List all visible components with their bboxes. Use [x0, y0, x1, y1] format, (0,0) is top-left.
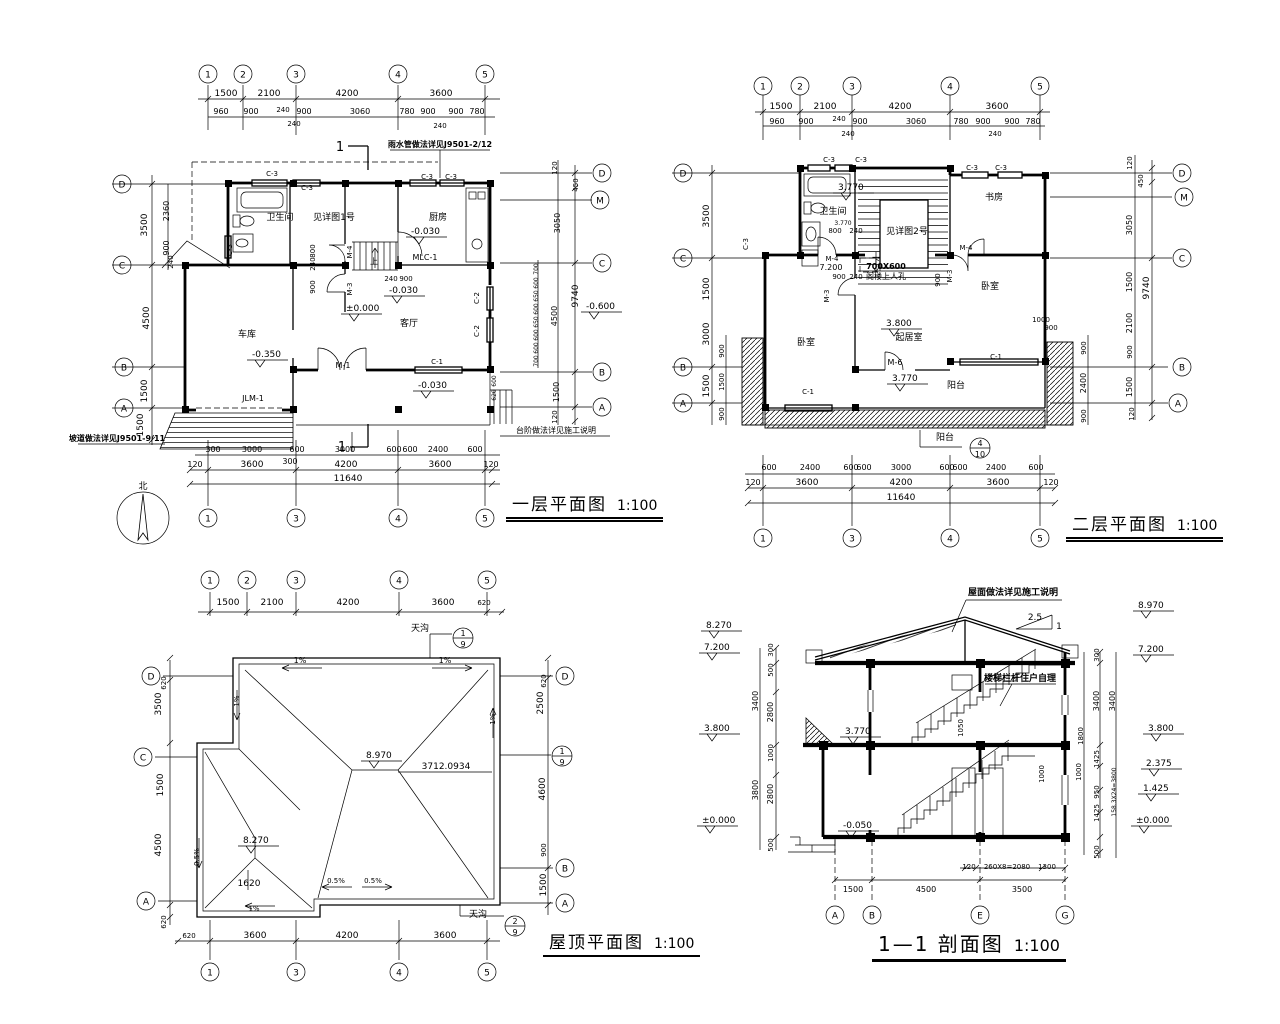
dim-label: 4200 — [336, 89, 359, 99]
level-label: 8.970 — [1138, 601, 1164, 611]
dim-label: 3500 — [702, 204, 712, 227]
grid-bubble-label: G — [1062, 912, 1069, 922]
dim-label: 9740 — [1142, 276, 1152, 299]
dim-label: 600 — [761, 463, 776, 472]
dim-label: 1500 — [843, 885, 863, 894]
dim-label: 900 — [296, 107, 311, 116]
dim-label: 3600 — [432, 598, 455, 608]
dim-label: 2100 — [261, 598, 284, 608]
title-text: 屋顶平面图 — [549, 933, 644, 953]
dim-label: 240 — [988, 130, 1001, 138]
dim-label: 4500 — [550, 306, 559, 326]
level-label: 8.270 — [243, 836, 269, 846]
dim-label: 3400 — [1108, 691, 1117, 711]
dim-label: 起居室 — [895, 331, 922, 343]
dim-label: 见详图1号 — [313, 211, 355, 223]
dim-label: 楼梯栏杆住户自理 — [984, 672, 1056, 684]
grid-bubble-label: M — [596, 197, 604, 207]
dim-label: 车库 — [238, 328, 256, 340]
level-symbol — [238, 846, 279, 853]
dim-label: 2.5 — [1028, 613, 1042, 623]
level-label: 1.425 — [1143, 784, 1169, 794]
title-roof-plan: 屋顶平面图1:100 — [543, 928, 700, 957]
dim-label: 2800 — [766, 702, 775, 722]
dim-label: 600 — [402, 445, 417, 454]
dim-label: 1500 — [702, 374, 712, 397]
dim-label: 900 — [162, 240, 171, 255]
grid-bubble-label: D — [680, 170, 687, 180]
level-label: -0.030 — [418, 381, 447, 391]
dim-label: 780 — [953, 117, 968, 126]
grid-bubble-label: 1 — [205, 515, 211, 525]
dim-label: 1425 — [1093, 750, 1101, 768]
dim-label: 2100 — [1125, 313, 1134, 333]
dim-label: C-1 — [802, 388, 814, 396]
dim-label: 1500 — [552, 382, 561, 402]
level-label: 3.800 — [1148, 724, 1174, 734]
dim-label: C-3 — [966, 164, 978, 172]
dim-label: 900 — [540, 843, 548, 856]
grid-bubble-label: 1 — [207, 577, 213, 587]
dim-label: 屋面做法详见施工说明 — [968, 586, 1058, 598]
grid-bubble-label: A — [599, 404, 606, 414]
dim-label: C-3 — [301, 184, 313, 192]
dim-label: 3.770 — [834, 220, 851, 227]
grid-bubble-label: A — [143, 898, 150, 908]
level-label: 3.800 — [704, 724, 730, 734]
grid-bubble-label: C — [1179, 255, 1185, 265]
dim-label: 600 — [467, 445, 482, 454]
dim-label: C-3 — [226, 244, 234, 256]
section-1-1 — [760, 600, 1116, 903]
dim-label: 3600 — [430, 89, 453, 99]
dim-label: 120 — [1128, 407, 1136, 420]
dim-label: 700X600 — [866, 262, 906, 271]
dim-label: 1500 — [156, 773, 166, 796]
dim-label: 3600 — [434, 931, 457, 941]
grid-bubble-label: B — [121, 364, 127, 374]
dim-label: 900 — [798, 117, 813, 126]
dim-label: 1500 — [1125, 272, 1134, 292]
dim-label: JLM-1 — [241, 394, 264, 403]
dim-label: 1300 — [1038, 863, 1056, 871]
level-symbol — [1138, 794, 1179, 801]
dim-label: 120 — [745, 478, 760, 487]
dim-label: 3050 — [553, 213, 562, 233]
dim-label: M-4 — [825, 255, 839, 263]
grid-bubble-label: 3 — [293, 515, 299, 525]
dim-label: 阳台 — [936, 431, 954, 443]
dim-label: M-3 — [946, 269, 954, 282]
dim-label: 240 — [433, 122, 446, 130]
level-symbol — [341, 314, 382, 321]
dim-label: 1 — [336, 140, 344, 155]
dim-label: C-2 — [473, 325, 481, 337]
grid-bubble-label: 1 — [205, 71, 211, 81]
dim-label: 卧室 — [797, 336, 815, 348]
dim-label: 1500 — [770, 102, 793, 112]
dim-label: 600 — [533, 329, 540, 341]
grid-bubble-label: 5 — [484, 969, 490, 979]
dim-label: C-3 — [995, 164, 1007, 172]
grid-bubble-label: E — [977, 912, 983, 922]
dim-label: C-3 — [742, 238, 750, 250]
grid-bubble-label: D — [1179, 170, 1186, 180]
dim-label: 900 — [1004, 117, 1019, 126]
dim-label: 1050 — [957, 719, 965, 737]
dim-label: MLC-1 — [413, 253, 438, 262]
dim-label: 1800 — [1077, 727, 1085, 745]
dim-label: 卧室 — [981, 280, 999, 292]
title-text: 一层平面图 — [512, 495, 607, 515]
dim-label: 650 — [533, 290, 540, 302]
dim-label: 900 — [718, 344, 726, 357]
level-label: -0.600 — [586, 302, 615, 312]
level-label: ±0.000 — [1136, 816, 1170, 826]
detail-sheet: 10 — [975, 450, 985, 459]
grid-bubble-label: D — [119, 181, 126, 191]
dim-label: C-3 — [823, 156, 835, 164]
dim-label: 北 — [138, 481, 147, 492]
level-label: -0.030 — [389, 286, 418, 296]
dim-label: 上 — [370, 257, 378, 266]
dim-label: 900 — [718, 407, 726, 420]
dim-label: 客厅 — [400, 317, 418, 329]
dim-label: 900 — [420, 107, 435, 116]
dim-label: 4200 — [336, 931, 359, 941]
dim-label: 3712.0934 — [422, 762, 471, 772]
grid-bubble-label: 3 — [293, 577, 299, 587]
level-symbol — [701, 631, 742, 638]
level-label: 7.200 — [1138, 645, 1164, 655]
dim-label: 800 — [309, 244, 317, 257]
grid-bubble-label: 3 — [849, 535, 855, 545]
dim-label: 960 — [769, 117, 784, 126]
detail-number: 1 — [559, 747, 564, 756]
grid-bubble-label: 5 — [482, 515, 488, 525]
dim-label: 书房 — [985, 191, 1003, 203]
dim-label: 3400 — [1092, 691, 1101, 711]
dim-label: 900 — [934, 273, 942, 286]
dim-label: C-3 — [421, 173, 433, 181]
dim-label: 1000 — [1038, 765, 1046, 783]
title-scale: 1:100 — [1177, 518, 1217, 534]
dim-label: 260X8=2080 — [984, 863, 1030, 871]
grid-bubble-label: 2 — [244, 577, 250, 587]
level-symbol — [699, 734, 740, 741]
dim-label: 500 — [767, 838, 775, 851]
dim-label: 900 — [399, 275, 412, 283]
dim-label: 阳台 — [947, 379, 965, 391]
grid-bubble-label: B — [562, 865, 568, 875]
detail-number: 2 — [512, 917, 517, 926]
dim-label: 4500 — [154, 833, 164, 856]
dim-label: 620 — [182, 932, 195, 940]
dim-label: 450 — [1137, 174, 1145, 187]
dim-label: 600 — [289, 445, 304, 454]
level-label: -0.350 — [252, 350, 281, 360]
grid-bubble-label: C — [599, 260, 605, 270]
dim-label: C-3 — [266, 170, 278, 178]
grid-bubble-label: B — [680, 364, 686, 374]
dim-label: 240 — [384, 275, 397, 283]
dim-label: 1% — [439, 656, 452, 665]
dim-label: 950 — [1093, 785, 1101, 798]
dim-label: 2500 — [536, 691, 546, 714]
title-second-floor-plan: 二层平面图1:100 — [1066, 510, 1223, 542]
dim-label: 3400 — [751, 691, 760, 711]
dim-label: 1500 — [217, 598, 240, 608]
grid-bubble-label: 3 — [293, 969, 299, 979]
level-symbol — [413, 391, 454, 398]
grid-bubble-label: 4 — [395, 71, 401, 81]
dim-label: 4200 — [890, 478, 913, 488]
dim-label: 650 — [533, 316, 540, 328]
grid-bubble-label: 1 — [760, 535, 766, 545]
level-symbol — [887, 384, 928, 391]
dim-label: 240 — [841, 130, 854, 138]
dim-label: 3060 — [350, 107, 370, 116]
grid-bubble-label: C — [140, 754, 146, 764]
grid-bubble-label: D — [562, 673, 569, 683]
dim-label: 600 — [856, 463, 871, 472]
grid-bubble-label: 5 — [1037, 83, 1043, 93]
grid-bubble-label: 4 — [396, 969, 402, 979]
title-scale: 1:100 — [654, 936, 694, 952]
grid-bubble-label: A — [1175, 400, 1182, 410]
dim-label: 120 — [1043, 478, 1058, 487]
dim-label: 158.3X24=3800 — [1111, 767, 1118, 816]
dim-label: 2360 — [162, 201, 171, 221]
dim-label: 4500 — [916, 885, 936, 894]
dim-label: 1% — [489, 713, 497, 724]
level-label: 3.770 — [838, 183, 864, 193]
dim-label: 4500 — [142, 306, 152, 329]
level-symbol — [247, 360, 288, 367]
dim-label: 3600 — [987, 478, 1010, 488]
dim-label: 1620 — [238, 879, 261, 889]
dim-label: 2800 — [766, 784, 775, 804]
dim-label: 2100 — [814, 102, 837, 112]
dim-label: 卫生间 — [819, 205, 846, 217]
dim-label: 雨水管做法详见J9501-2/12 — [388, 139, 492, 149]
grid-bubble-label: C — [680, 255, 686, 265]
dim-label: 3800 — [751, 780, 760, 800]
dim-label: C-3 — [445, 173, 457, 181]
dim-label: 11640 — [334, 474, 363, 484]
dim-label: 600 — [1028, 463, 1043, 472]
title-first-floor-plan: 一层平面图1:100 — [506, 490, 663, 522]
architectural-drawing-sheet: 1500210042003600960900240900306078090090… — [0, 0, 1280, 1024]
dim-label: M-3 — [346, 282, 354, 295]
dim-label: 4200 — [337, 598, 360, 608]
dim-label: 780 — [399, 107, 414, 116]
grid-bubble-label: C — [119, 262, 125, 272]
level-symbol — [1131, 826, 1172, 833]
grid-bubble-label: 2 — [797, 83, 803, 93]
dim-label: 3000 — [702, 322, 712, 345]
dim-label: 240 — [309, 257, 317, 270]
north-arrow — [117, 492, 169, 544]
dim-label: 3500 — [140, 213, 150, 236]
detail-number: 1 — [460, 629, 465, 638]
level-symbol — [1143, 734, 1184, 741]
grid-bubble-label: 5 — [484, 577, 490, 587]
level-symbol — [581, 312, 622, 319]
dim-label: 3000 — [335, 445, 355, 454]
dim-label: 1500 — [1125, 377, 1134, 397]
grid-bubble-label: B — [599, 369, 605, 379]
dim-label: 120 — [551, 161, 559, 174]
level-symbol — [361, 761, 402, 768]
dim-label: 天沟 — [411, 622, 429, 634]
dim-label: 900 — [309, 280, 317, 293]
dim-label: 620 — [491, 389, 498, 401]
dim-label: 240 — [167, 255, 175, 268]
dim-label: M-4 — [346, 245, 354, 259]
dim-label: 900 — [852, 117, 867, 126]
dim-label: 240 — [849, 227, 862, 235]
dim-label: 11640 — [887, 493, 916, 503]
dim-label: 3060 — [906, 117, 926, 126]
dim-label: 900 — [243, 107, 258, 116]
dim-label: 900 — [448, 107, 463, 116]
dim-label: 1500 — [215, 89, 238, 99]
dim-label: 120 — [187, 460, 202, 469]
dim-label: 2400 — [1079, 373, 1088, 393]
dim-label: 3600 — [241, 460, 264, 470]
grid-bubble-label: A — [832, 912, 839, 922]
dim-label: 厨房 — [429, 211, 447, 223]
dim-label: 9740 — [571, 284, 581, 307]
title-section-1-1: 1—1 剖面图1:100 — [872, 928, 1066, 962]
grid-bubble-label: 4 — [395, 515, 401, 525]
dim-label: 240 — [276, 106, 289, 114]
level-symbol — [1141, 769, 1182, 776]
level-symbol — [1133, 655, 1174, 662]
dim-label: 3600 — [429, 460, 452, 470]
dim-label: 300 — [205, 445, 220, 454]
level-label: ±0.000 — [702, 816, 736, 826]
dim-label: 120 — [551, 410, 559, 423]
level-label: -0.030 — [411, 227, 440, 237]
dim-label: 阁楼上人孔 — [866, 271, 906, 281]
dim-label: 600 — [533, 303, 540, 315]
dim-label: 900 — [975, 117, 990, 126]
dim-label: 1% — [248, 905, 259, 913]
dim-label: 3600 — [244, 931, 267, 941]
dim-label: 120 — [1126, 156, 1134, 169]
second-floor-plan — [672, 95, 1172, 526]
level-symbol — [833, 193, 874, 200]
level-symbol — [697, 826, 738, 833]
detail-sheet: 9 — [460, 640, 465, 649]
dim-label: 900 — [1126, 345, 1134, 358]
dim-label: 240 — [832, 115, 845, 123]
dim-label: 2100 — [258, 89, 281, 99]
title-scale: 1:100 — [617, 498, 657, 514]
level-label: 2.375 — [1146, 759, 1172, 769]
dim-label: 2400 — [428, 445, 448, 454]
dim-label: 3050 — [1125, 215, 1134, 235]
dim-label: 1% — [233, 695, 241, 706]
dim-label: 4200 — [889, 102, 912, 112]
title-text: 二层平面图 — [1072, 515, 1167, 535]
level-symbol — [406, 237, 447, 244]
roof-plan — [155, 592, 553, 960]
dim-label: M-6 — [888, 358, 903, 367]
dim-label: 780 — [469, 107, 484, 116]
level-label: 3.770 — [892, 374, 918, 384]
dim-label: 3000 — [891, 463, 911, 472]
dim-label: 120 — [962, 863, 975, 871]
dim-label: 900 — [1080, 409, 1088, 422]
dim-label: C-3 — [855, 156, 867, 164]
grid-bubble-label: 5 — [1037, 535, 1043, 545]
dim-label: 300 — [282, 457, 297, 466]
dim-label: 卫生间 — [266, 211, 293, 223]
dim-label: 800 — [828, 227, 841, 235]
dim-label: C-1 — [431, 358, 443, 366]
level-label: -0.050 — [843, 821, 872, 831]
dim-label: 0.5% — [327, 877, 345, 885]
dim-label: 600 — [386, 445, 401, 454]
dim-label: 1500 — [702, 277, 712, 300]
dim-label: 2400 — [986, 463, 1006, 472]
dim-label: 0.5% — [193, 848, 201, 866]
dim-label: C-2 — [473, 292, 481, 304]
grid-bubble-label: M — [1180, 194, 1188, 204]
dim-label: 1500 — [140, 379, 150, 402]
dim-label: 700 — [533, 355, 540, 367]
dim-label: 3000 — [242, 445, 262, 454]
level-label: 3.770 — [845, 727, 871, 737]
dim-label: 见详图2号 — [886, 225, 928, 237]
dim-label: 1 — [1056, 622, 1062, 632]
dim-label: 1425 — [1093, 804, 1101, 822]
dim-label: M-3 — [823, 289, 831, 302]
level-label: 8.970 — [366, 751, 392, 761]
grid-bubble-label: 1 — [760, 83, 766, 93]
grid-bubble-label: 2 — [240, 71, 246, 81]
dim-label: 240 — [849, 273, 862, 281]
dim-label: 1500 — [136, 413, 146, 436]
dim-label: 900 — [1044, 324, 1057, 332]
dim-label: 3600 — [986, 102, 1009, 112]
grid-bubble-label: A — [680, 400, 687, 410]
dim-label: 3500 — [154, 692, 164, 715]
dim-label: 3500 — [1012, 885, 1032, 894]
dim-label: 4600 — [538, 777, 548, 800]
dim-label: 600 — [533, 342, 540, 354]
level-symbol — [1133, 611, 1174, 618]
dim-label: 960 — [213, 107, 228, 116]
grid-bubble-label: A — [562, 900, 569, 910]
dim-label: 4200 — [335, 460, 358, 470]
level-label: ±0.000 — [346, 304, 380, 314]
dim-label: 7.200 — [820, 263, 843, 272]
grid-bubble-label: 4 — [947, 535, 953, 545]
dim-label: 台阶做法详见施工说明 — [516, 425, 596, 435]
detail-sheet: 9 — [512, 928, 517, 937]
dim-label: 1000 — [1032, 316, 1050, 324]
dim-label: 620 — [160, 676, 168, 689]
grid-bubble-label: 3 — [293, 71, 299, 81]
grid-bubble-label: A — [121, 405, 128, 415]
level-symbol — [384, 296, 425, 303]
title-text: 1—1 剖面图 — [878, 932, 1004, 956]
dim-label: 600 — [491, 375, 498, 387]
